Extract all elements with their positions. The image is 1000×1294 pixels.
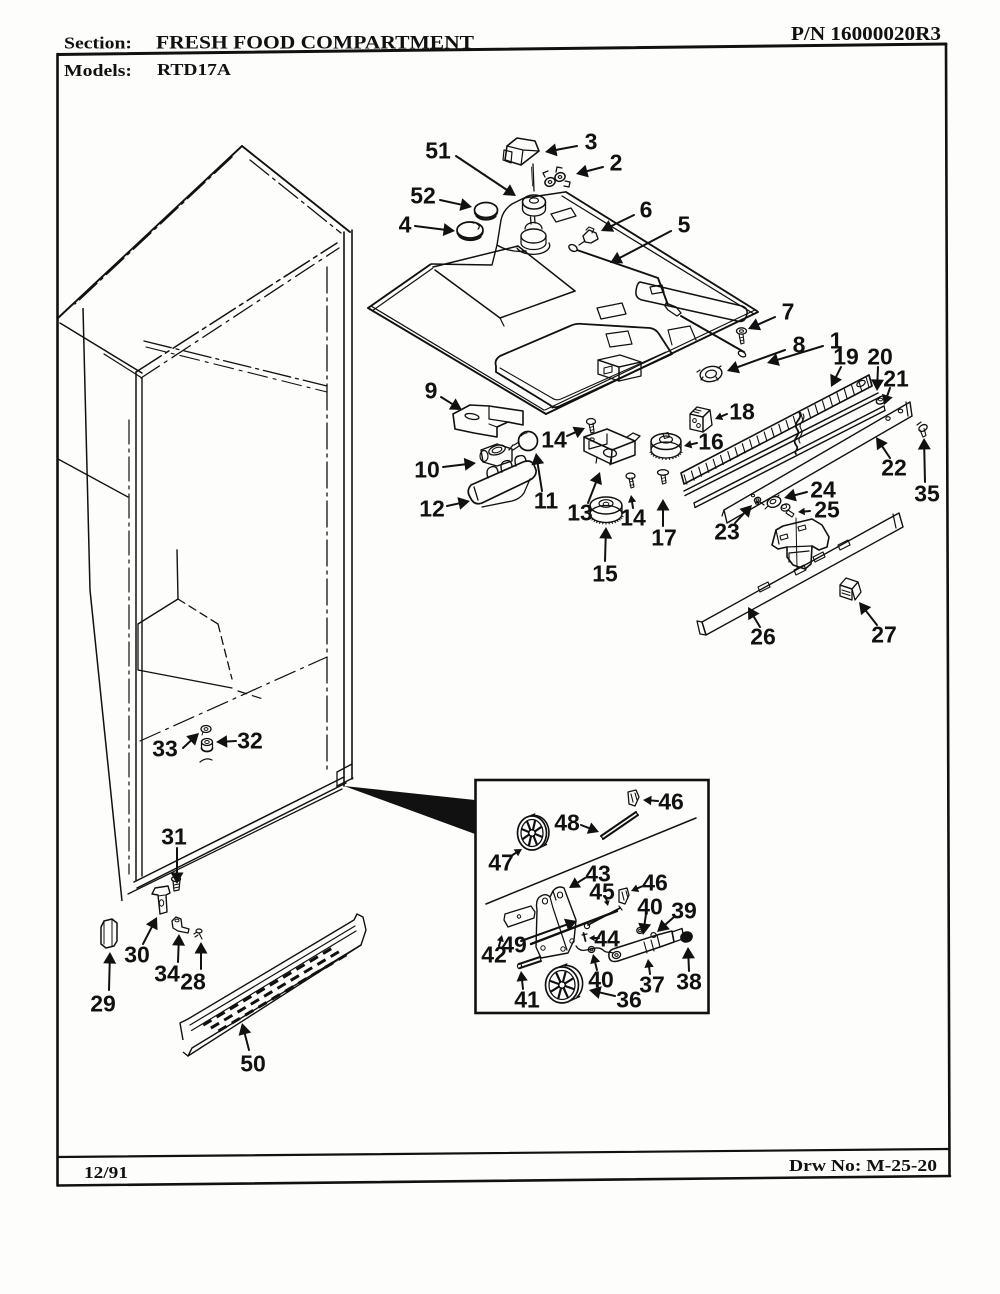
- svg-text:46: 46: [658, 788, 684, 814]
- svg-text:Section:: Section:: [64, 34, 132, 53]
- svg-text:51: 51: [425, 137, 451, 163]
- svg-text:41: 41: [514, 986, 540, 1012]
- svg-text:3: 3: [585, 128, 598, 154]
- svg-text:18: 18: [729, 398, 755, 424]
- svg-text:12: 12: [419, 495, 445, 521]
- svg-text:21: 21: [883, 365, 909, 391]
- svg-text:32: 32: [237, 727, 263, 753]
- svg-text:Models:: Models:: [64, 61, 132, 80]
- svg-text:10: 10: [414, 456, 440, 482]
- svg-text:27: 27: [871, 621, 897, 647]
- svg-text:19: 19: [833, 343, 859, 369]
- svg-text:40: 40: [637, 893, 663, 919]
- svg-text:RTD17A: RTD17A: [157, 60, 231, 79]
- svg-text:31: 31: [161, 823, 187, 849]
- svg-text:50: 50: [240, 1050, 266, 1076]
- svg-text:12/91: 12/91: [84, 1163, 128, 1182]
- svg-text:33: 33: [152, 735, 178, 761]
- svg-text:34: 34: [154, 960, 180, 986]
- svg-text:P/N 16000020R3: P/N 16000020R3: [791, 24, 941, 45]
- svg-text:11: 11: [534, 487, 559, 513]
- svg-text:14: 14: [541, 426, 567, 452]
- svg-text:26: 26: [750, 623, 776, 649]
- svg-text:37: 37: [639, 971, 665, 997]
- svg-text:36: 36: [616, 986, 642, 1012]
- svg-text:9: 9: [425, 377, 438, 403]
- svg-text:17: 17: [651, 524, 677, 550]
- svg-text:2: 2: [610, 149, 623, 175]
- svg-text:52: 52: [410, 182, 436, 208]
- svg-text:28: 28: [180, 968, 206, 994]
- svg-text:35: 35: [914, 480, 940, 506]
- svg-text:6: 6: [640, 196, 653, 222]
- svg-text:7: 7: [782, 298, 795, 324]
- svg-text:48: 48: [554, 809, 580, 835]
- svg-text:16: 16: [698, 428, 724, 454]
- svg-text:5: 5: [678, 211, 691, 237]
- svg-text:47: 47: [488, 849, 514, 875]
- svg-text:15: 15: [592, 560, 618, 586]
- svg-text:46: 46: [642, 869, 668, 895]
- svg-text:49: 49: [501, 931, 527, 957]
- svg-text:Drw No: M-25-20: Drw No: M-25-20: [789, 1156, 937, 1175]
- svg-text:39: 39: [671, 897, 697, 923]
- svg-text:29: 29: [90, 990, 116, 1016]
- svg-text:30: 30: [124, 941, 150, 967]
- svg-text:4: 4: [399, 211, 412, 237]
- svg-text:38: 38: [676, 968, 702, 994]
- svg-text:22: 22: [881, 454, 907, 480]
- svg-text:25: 25: [814, 496, 840, 522]
- svg-text:45: 45: [589, 878, 615, 904]
- svg-text:8: 8: [793, 331, 806, 357]
